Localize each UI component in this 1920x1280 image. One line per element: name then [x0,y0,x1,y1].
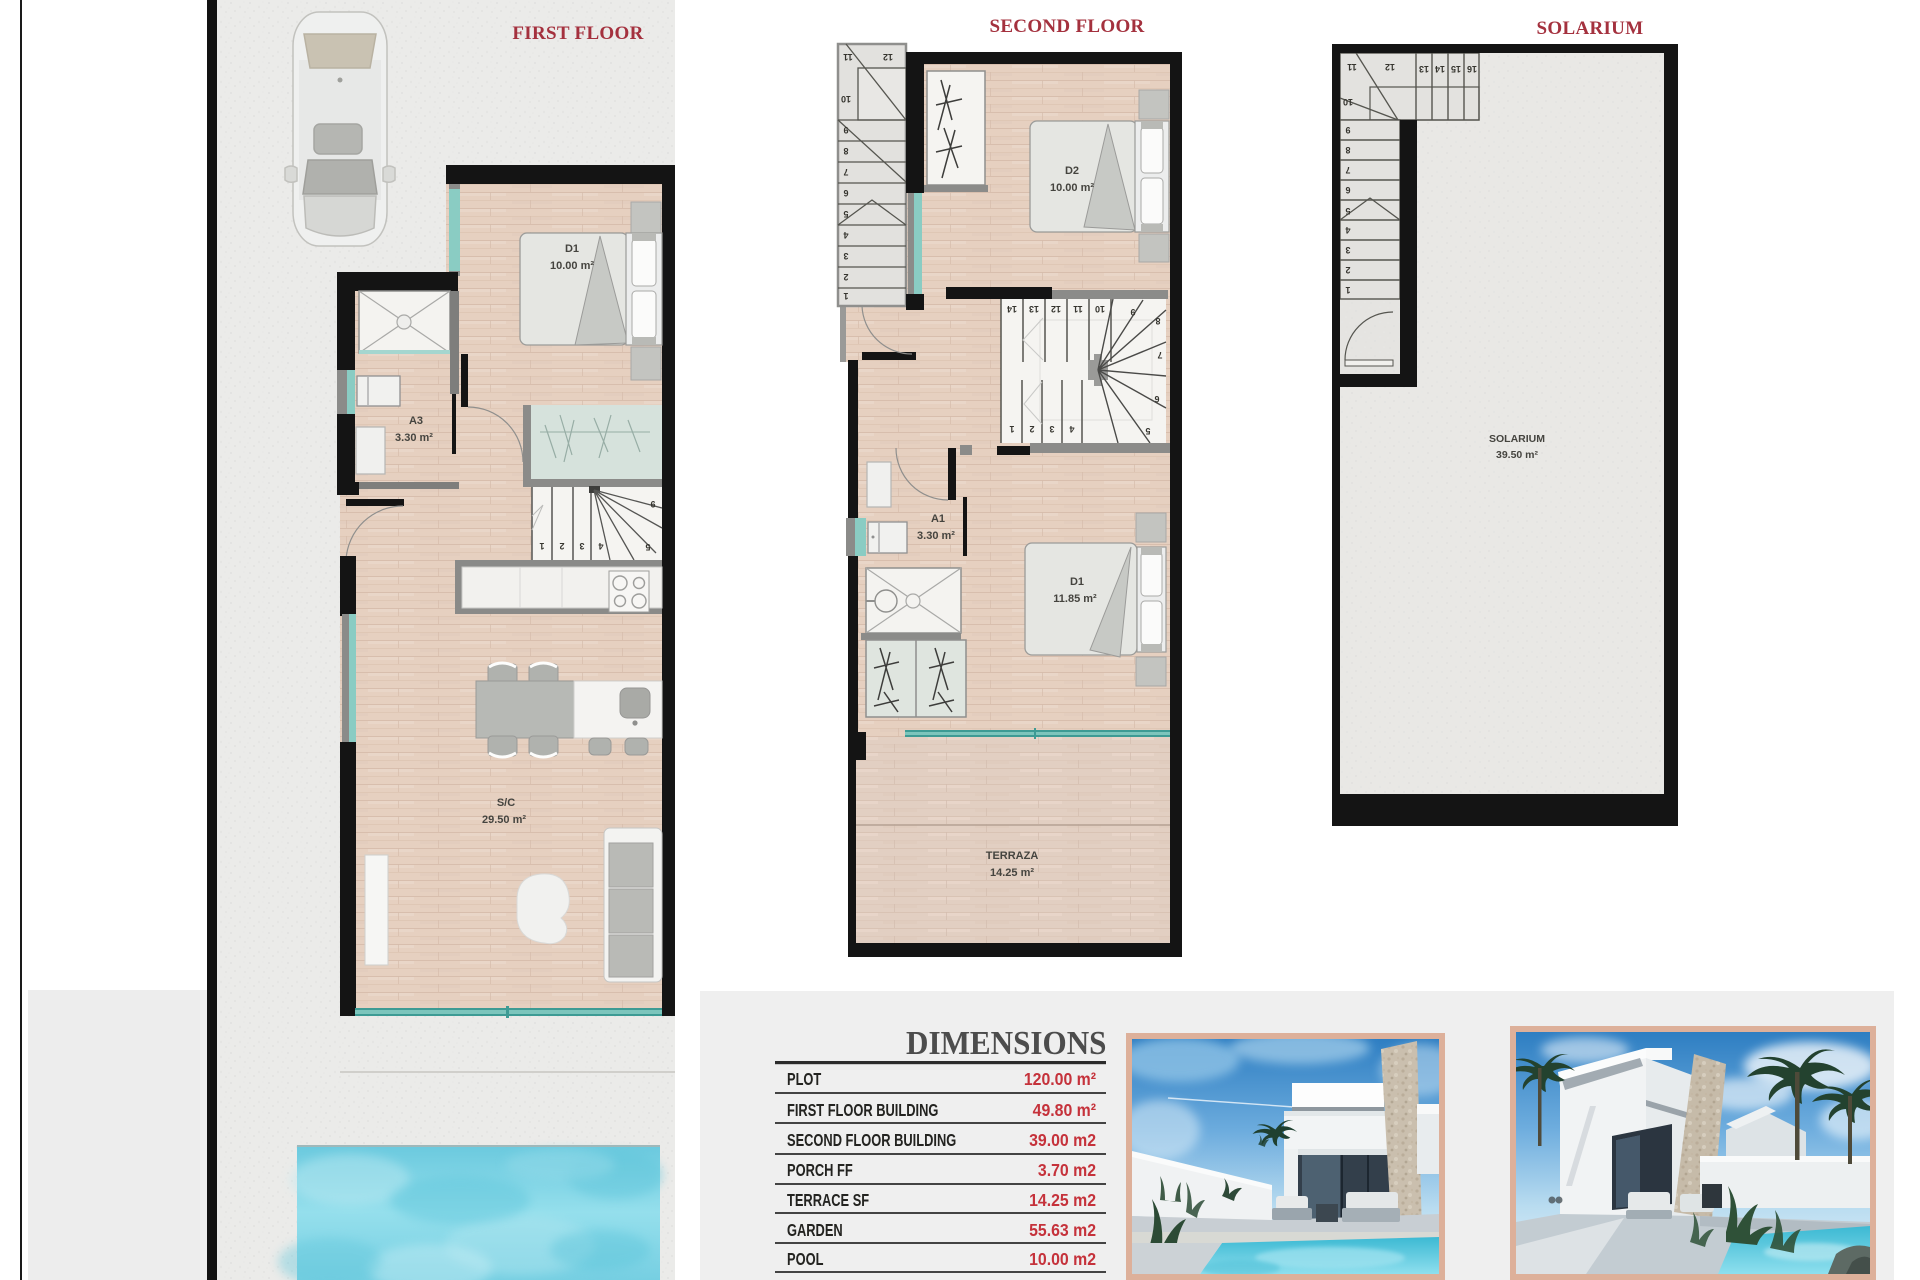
svg-text:D2: D2 [1065,165,1079,177]
svg-text:DIMENSIONS: DIMENSIONS [906,1025,1106,1063]
svg-text:55.63 m2: 55.63 m2 [1029,1220,1096,1240]
svg-text:2: 2 [843,272,848,282]
svg-text:15: 15 [1451,64,1461,74]
svg-text:12: 12 [1385,62,1395,72]
svg-text:POOL: POOL [787,1250,824,1270]
svg-text:13: 13 [1029,304,1039,314]
svg-text:3.30 m²: 3.30 m² [917,530,955,542]
svg-text:SOLARIUM: SOLARIUM [1489,433,1545,445]
svg-text:4: 4 [598,541,603,551]
svg-text:11.85 m²: 11.85 m² [1053,593,1097,605]
svg-text:12: 12 [883,52,893,62]
svg-text:3.70 m2: 3.70 m2 [1038,1160,1096,1180]
svg-text:13: 13 [1419,64,1429,74]
svg-text:7: 7 [1157,350,1162,360]
svg-text:8: 8 [843,146,848,156]
svg-text:4: 4 [843,230,848,240]
svg-text:FIRST FLOOR: FIRST FLOOR [512,23,643,44]
svg-text:10: 10 [1343,97,1353,107]
svg-text:8: 8 [1155,316,1160,326]
svg-text:120.00 m²: 120.00 m² [1024,1069,1096,1089]
svg-text:49.80 m²: 49.80 m² [1033,1100,1097,1120]
svg-text:6: 6 [1154,394,1159,404]
svg-text:10.00 m2: 10.00 m2 [1029,1249,1096,1269]
svg-text:PORCH FF: PORCH FF [787,1161,853,1181]
svg-text:5: 5 [1345,206,1350,216]
svg-text:D1: D1 [565,243,579,255]
svg-text:10.00 m²: 10.00 m² [1050,182,1094,194]
svg-text:11: 11 [843,52,853,62]
svg-text:1: 1 [1009,424,1014,434]
svg-text:5: 5 [843,209,848,219]
svg-text:5: 5 [1145,426,1150,436]
svg-text:10: 10 [841,94,851,104]
svg-text:14.25 m²: 14.25 m² [990,867,1034,879]
svg-text:14: 14 [1007,304,1017,314]
svg-text:A3: A3 [409,415,423,427]
svg-text:TERRAZA: TERRAZA [986,850,1039,862]
svg-text:3: 3 [579,541,584,551]
svg-text:SECOND FLOOR BUILDING: SECOND FLOOR BUILDING [787,1131,956,1151]
svg-text:11: 11 [1347,62,1357,72]
svg-text:11: 11 [1073,304,1083,314]
svg-text:2: 2 [1345,265,1350,275]
svg-text:1: 1 [539,541,544,551]
svg-text:10: 10 [1095,304,1105,314]
svg-text:PLOT: PLOT [787,1070,822,1090]
svg-text:GARDEN: GARDEN [787,1221,843,1241]
svg-text:1: 1 [843,291,848,301]
svg-text:10.00 m²: 10.00 m² [550,260,594,272]
svg-text:29.50 m²: 29.50 m² [482,814,526,826]
svg-text:3: 3 [1049,424,1054,434]
svg-text:3: 3 [1345,245,1350,255]
svg-text:39.50 m²: 39.50 m² [1496,449,1539,461]
svg-text:9: 9 [1345,125,1350,135]
svg-text:2: 2 [559,541,564,551]
svg-text:16: 16 [1467,64,1477,74]
svg-text:3: 3 [843,251,848,261]
svg-text:1: 1 [1345,285,1350,295]
svg-text:4: 4 [1069,424,1074,434]
svg-text:9: 9 [843,125,848,135]
svg-text:TERRACE SF: TERRACE SF [787,1191,869,1211]
svg-text:4: 4 [1345,225,1350,235]
svg-text:7: 7 [1345,165,1350,175]
svg-text:7: 7 [843,167,848,177]
svg-text:3.30 m²: 3.30 m² [395,432,433,444]
svg-text:S/C: S/C [497,797,515,809]
svg-text:SOLARIUM: SOLARIUM [1537,18,1644,39]
svg-text:14.25 m2: 14.25 m2 [1029,1190,1096,1210]
svg-text:D1: D1 [1070,576,1084,588]
svg-text:14: 14 [1435,64,1445,74]
svg-text:8: 8 [1345,145,1350,155]
svg-text:39.00 m2: 39.00 m2 [1029,1130,1096,1150]
svg-text:12: 12 [1051,304,1061,314]
svg-text:2: 2 [1029,424,1034,434]
svg-text:6: 6 [843,188,848,198]
svg-text:6: 6 [1345,185,1350,195]
svg-text:9: 9 [1130,307,1135,317]
svg-text:SECOND FLOOR: SECOND FLOOR [989,16,1144,37]
svg-text:9: 9 [650,499,655,509]
svg-text:A1: A1 [931,513,945,525]
svg-text:FIRST FLOOR BUILDING: FIRST FLOOR BUILDING [787,1101,938,1121]
svg-text:5: 5 [645,542,650,552]
